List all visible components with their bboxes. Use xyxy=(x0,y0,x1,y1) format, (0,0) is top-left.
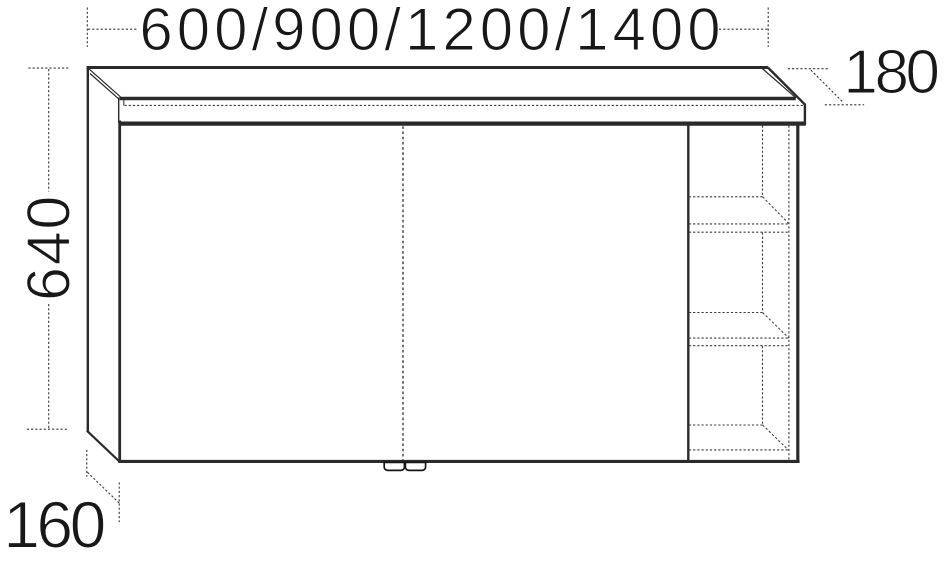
svg-text:160: 160 xyxy=(3,488,104,562)
svg-text:180: 180 xyxy=(843,38,938,107)
svg-text:640: 640 xyxy=(14,194,82,301)
svg-text:600/900/1200/1400: 600/900/1200/1400 xyxy=(139,0,724,63)
